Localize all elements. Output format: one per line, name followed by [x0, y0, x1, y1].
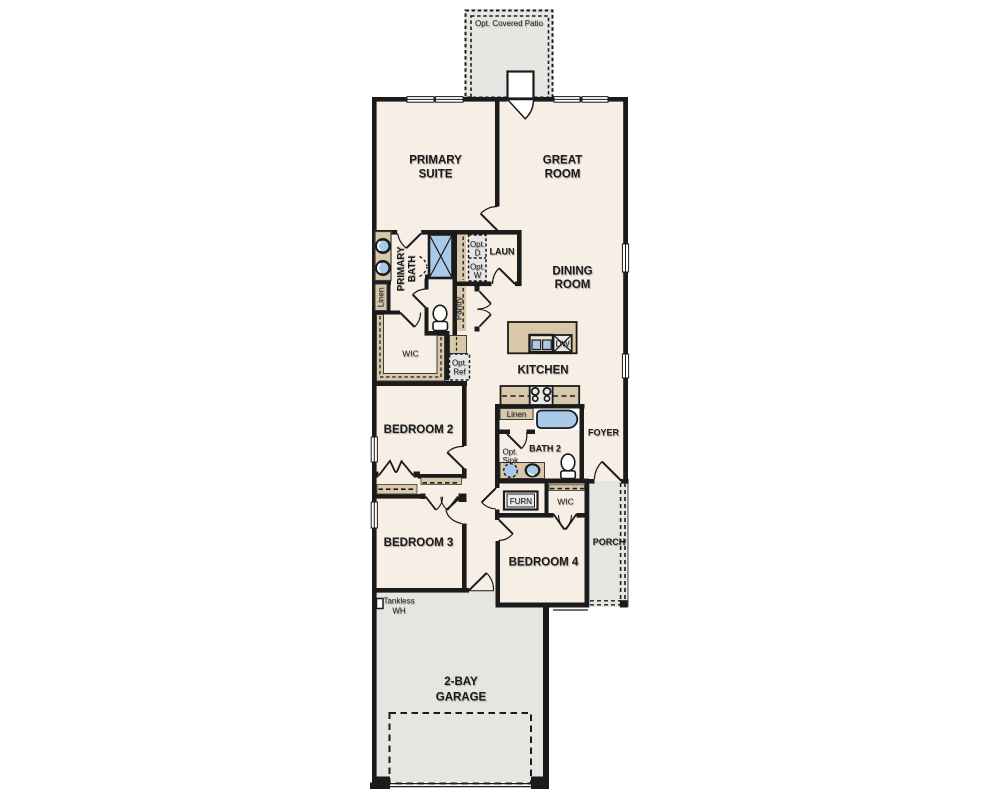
- svg-text:BEDROOM 2: BEDROOM 2: [384, 424, 454, 436]
- svg-text:FOYER: FOYER: [588, 428, 620, 438]
- svg-text:BEDROOM 4: BEDROOM 4: [509, 557, 579, 569]
- svg-text:GARAGE: GARAGE: [436, 692, 487, 704]
- svg-text:Ref: Ref: [453, 368, 466, 377]
- svg-text:2-BAY: 2-BAY: [444, 676, 478, 688]
- svg-text:BATH 2: BATH 2: [529, 444, 561, 454]
- svg-text:WIC: WIC: [557, 497, 574, 507]
- svg-text:BATH: BATH: [407, 256, 418, 282]
- svg-text:ROOM: ROOM: [545, 169, 581, 181]
- svg-text:PRIMARY: PRIMARY: [396, 246, 407, 291]
- svg-text:ROOM: ROOM: [555, 279, 591, 291]
- svg-text:Pantry: Pantry: [454, 297, 463, 320]
- svg-text:DW: DW: [555, 339, 570, 349]
- svg-text:Linen: Linen: [507, 410, 527, 419]
- svg-text:PORCH: PORCH: [593, 537, 626, 547]
- svg-text:Linen: Linen: [377, 288, 386, 308]
- svg-text:Opt.: Opt.: [452, 359, 467, 368]
- svg-text:WH: WH: [392, 607, 406, 616]
- svg-text:Opt. Covered Patio: Opt. Covered Patio: [475, 19, 544, 28]
- svg-text:D: D: [475, 249, 481, 258]
- svg-text:KITCHEN: KITCHEN: [517, 365, 568, 377]
- svg-text:Tankless: Tankless: [383, 597, 414, 606]
- svg-text:PRIMARY: PRIMARY: [409, 155, 462, 167]
- svg-text:W: W: [474, 271, 482, 280]
- svg-text:DINING: DINING: [552, 266, 592, 278]
- svg-text:GREAT: GREAT: [543, 155, 582, 167]
- svg-text:WIC: WIC: [402, 349, 419, 359]
- svg-text:Sink: Sink: [503, 456, 520, 465]
- svg-text:SUITE: SUITE: [419, 169, 453, 181]
- svg-text:LAUN: LAUN: [490, 247, 515, 257]
- svg-text:FURN: FURN: [510, 497, 532, 506]
- svg-text:BEDROOM 3: BEDROOM 3: [384, 537, 454, 549]
